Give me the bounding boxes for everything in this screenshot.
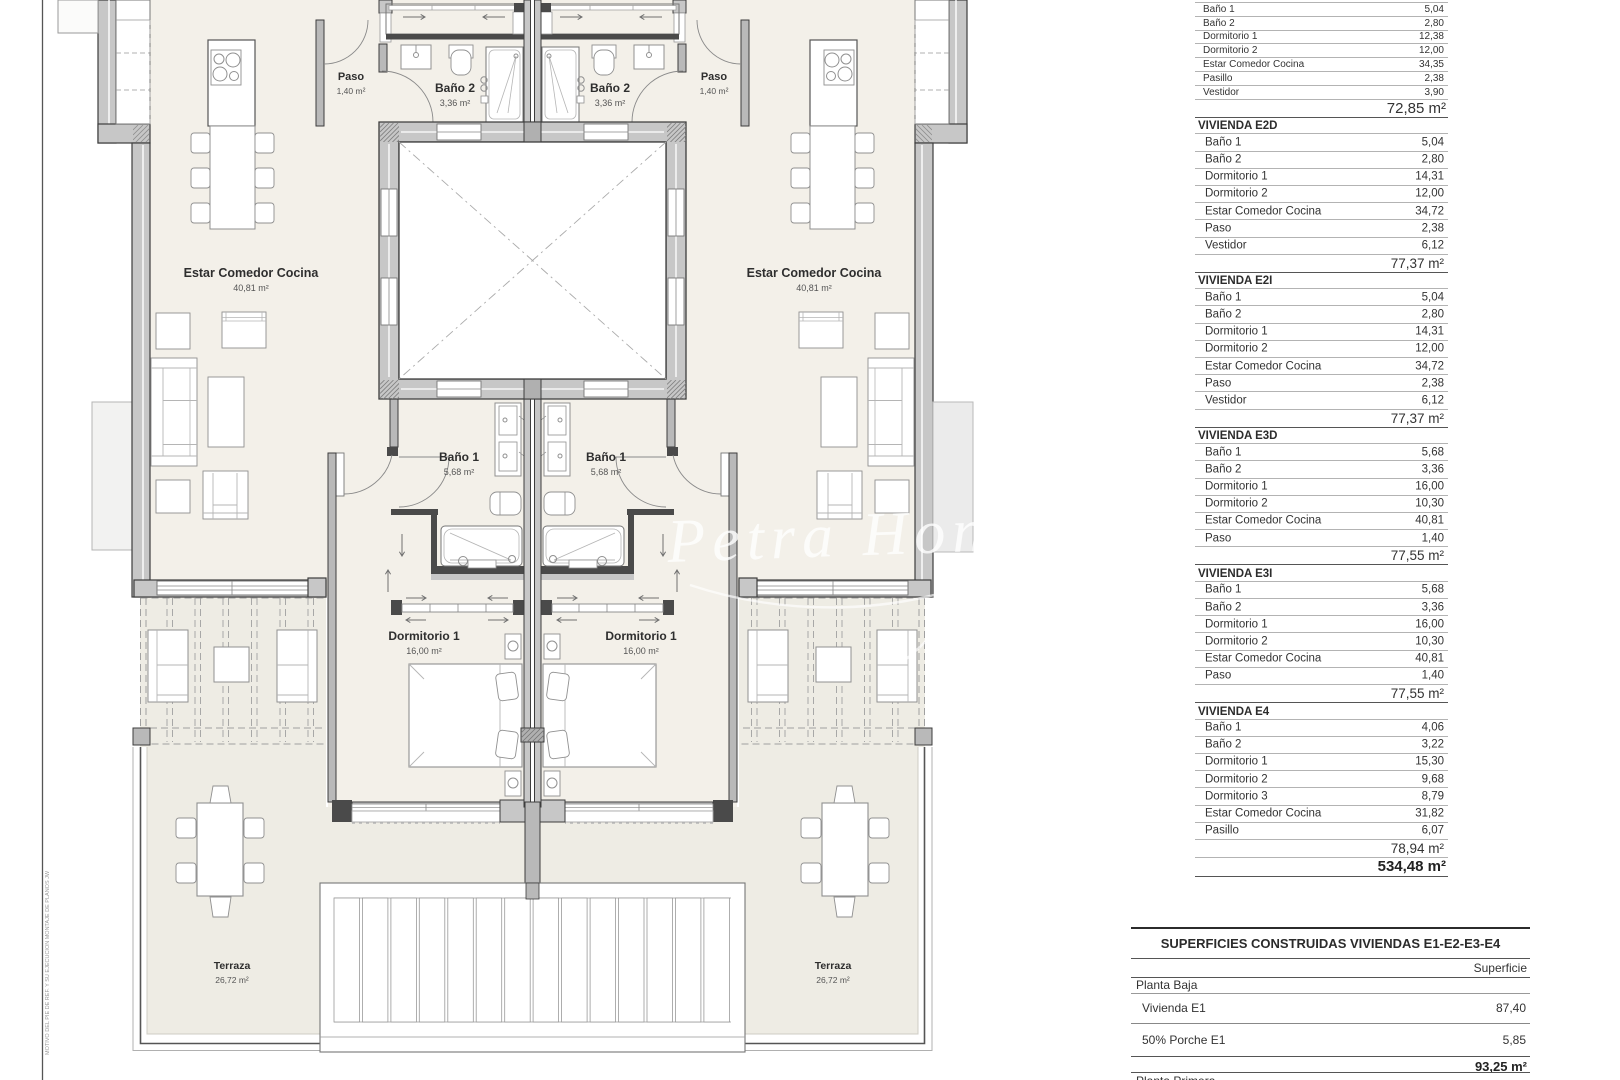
svg-text:Baño 2: Baño 2 bbox=[590, 81, 630, 95]
svg-text:Estar Comedor Cocina: Estar Comedor Cocina bbox=[184, 266, 320, 280]
svg-text:Dormitorio 1: Dormitorio 1 bbox=[388, 629, 460, 643]
svg-text:Terraza: Terraza bbox=[214, 960, 251, 972]
svg-text:Petra Honig: Petra Honig bbox=[665, 495, 1053, 576]
svg-text:26,72 m²: 26,72 m² bbox=[215, 975, 249, 985]
svg-text:1,40 m²: 1,40 m² bbox=[700, 86, 729, 96]
svg-text:Baño 1: Baño 1 bbox=[439, 450, 479, 464]
svg-text:40,81 m²: 40,81 m² bbox=[233, 283, 269, 293]
svg-text:3,36 m²: 3,36 m² bbox=[595, 98, 626, 108]
svg-text:26,72 m²: 26,72 m² bbox=[816, 975, 850, 985]
svg-text:16,00 m²: 16,00 m² bbox=[406, 646, 442, 656]
svg-text:Dormitorio 1: Dormitorio 1 bbox=[605, 629, 677, 643]
svg-text:Baño 1: Baño 1 bbox=[586, 450, 626, 464]
svg-text:MOTIVO DEL PIE DE REF. Y SU EJ: MOTIVO DEL PIE DE REF. Y SU EJECUCION MO… bbox=[45, 870, 51, 1055]
svg-text:5,68 m²: 5,68 m² bbox=[444, 467, 475, 477]
svg-text:5,68 m²: 5,68 m² bbox=[591, 467, 622, 477]
svg-text:Estar Comedor Cocina: Estar Comedor Cocina bbox=[747, 266, 883, 280]
svg-text:Baño 2: Baño 2 bbox=[435, 81, 475, 95]
svg-text:3,36 m²: 3,36 m² bbox=[440, 98, 471, 108]
svg-text:40,81 m²: 40,81 m² bbox=[796, 283, 832, 293]
svg-text:1,40 m²: 1,40 m² bbox=[337, 86, 366, 96]
svg-text:Paso: Paso bbox=[701, 71, 728, 83]
svg-text:16,00 m²: 16,00 m² bbox=[623, 646, 659, 656]
svg-text:Paso: Paso bbox=[338, 71, 365, 83]
svg-text:Terraza: Terraza bbox=[815, 960, 852, 972]
